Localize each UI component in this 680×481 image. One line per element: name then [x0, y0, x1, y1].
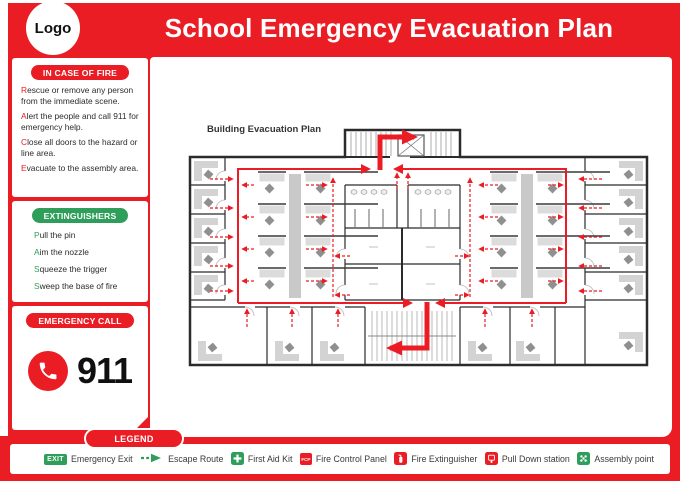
logo-text: Logo [35, 20, 72, 37]
fire-control-panel-icon: FCP [300, 453, 312, 465]
legend-label: Fire Control Panel [316, 454, 387, 464]
extinguishers-card: EXTINGUISHERS Pull the pin Aim the nozzl… [12, 201, 148, 302]
floor-plan: Building Evacuation Plan [150, 57, 672, 437]
escape-route-icon [140, 453, 164, 465]
first-aid-icon [231, 452, 244, 467]
emergency-exit-icon: EXIT [44, 454, 67, 465]
legend-item-emergency-exit: EXIT Emergency Exit [44, 454, 133, 465]
extinguisher-step: Sweep the base of fire [34, 281, 148, 292]
evacuation-poster: Logo School Emergency Evacuation Plan IN… [0, 0, 680, 481]
legend-item-fire-control-panel: FCP Fire Control Panel [300, 453, 387, 465]
legend-label: First Aid Kit [248, 454, 292, 464]
legend-item-assembly-point: Assembly point [577, 452, 654, 467]
fire-instruction: Close all doors to the hazard or line ar… [21, 137, 139, 159]
legend-label: Emergency Exit [71, 454, 133, 464]
page-title: School Emergency Evacuation Plan [112, 13, 666, 44]
legend-label: Escape Route [168, 454, 223, 464]
plan-title: Building Evacuation Plan [207, 124, 321, 135]
building-outline [190, 130, 647, 365]
legend-item-escape-route: Escape Route [140, 453, 223, 465]
legend-label: Assembly point [594, 454, 654, 464]
emergency-call-title: EMERGENCY CALL [26, 313, 133, 328]
fire-instruction: Rescue or remove any person from the imm… [21, 85, 139, 107]
legend-label: Pull Down station [502, 454, 570, 464]
extinguisher-step: Pull the pin [34, 230, 148, 241]
assembly-point-icon [577, 452, 590, 467]
emergency-call-row: 911 [12, 350, 148, 392]
legend-item-first-aid: First Aid Kit [231, 452, 292, 467]
legend-label: Fire Extinguisher [411, 454, 477, 464]
extinguisher-step: Aim the nozzle [34, 247, 148, 258]
legend-item-pull-down-station: Pull Down station [485, 452, 570, 467]
top-margin [0, 0, 680, 3]
floor-plan-panel: Building Evacuation Plan [150, 57, 672, 437]
pull-down-station-icon [485, 452, 498, 467]
left-margin [0, 0, 8, 436]
fire-instruction: Evacuate to the assembly area. [21, 163, 139, 174]
fire-instruction: Alert the people and call 911 for emerge… [21, 111, 139, 133]
fire-instructions-card: IN CASE OF FIRE Rescue or remove any per… [12, 58, 148, 197]
legend-title: LEGEND [84, 428, 184, 449]
emergency-number: 911 [77, 350, 132, 392]
emergency-call-card: EMERGENCY CALL 911 [12, 306, 148, 430]
logo: Logo [26, 1, 80, 55]
phone-icon [28, 351, 68, 391]
extinguisher-step: Squeeze the trigger [34, 264, 148, 275]
legend-item-fire-extinguisher: Fire Extinguisher [394, 452, 477, 467]
fire-card-title: IN CASE OF FIRE [31, 65, 129, 80]
extinguishers-card-title: EXTINGUISHERS [32, 208, 129, 223]
fire-extinguisher-icon [394, 452, 407, 467]
